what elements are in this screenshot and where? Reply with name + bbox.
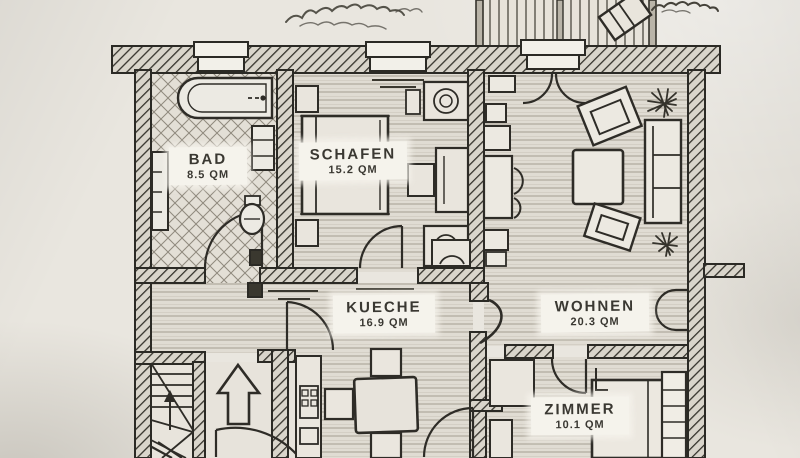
bad-radiator [152,152,168,230]
room-area-kueche: 16.9 QM [339,317,429,331]
wall-hall-2 [260,268,357,283]
door-frame-post [250,250,262,265]
wall-wohnen-zimmer-1 [505,345,553,358]
wall-stub-right [704,264,744,277]
wohnen-desk [484,156,512,218]
wall-wohnen-zimmer-2 [588,345,688,358]
schafen-washbasin [432,240,470,266]
stove [300,386,318,418]
dining-chair-top [371,349,401,376]
wohnen-bench [489,76,515,92]
window-schafen [366,42,430,71]
nightstand-top [296,86,318,112]
wall-left [135,70,151,458]
bad-cabinet [252,126,274,170]
tree-sketch-right [652,2,718,13]
room-name-kueche: KUECHE [339,299,429,317]
room-name-wohnen: WOHNEN [547,297,643,315]
tree-sketch [286,5,422,30]
wohnen-side-table-1 [486,104,506,122]
dresser-stool [406,90,420,114]
room-area-zimmer: 10.1 QM [537,419,623,433]
zimmer-wardrobe [490,420,512,458]
room-area-schafen: 15.2 QM [305,164,401,178]
room-area-wohnen: 20.3 QM [547,316,643,330]
wall-bad-schafen [277,70,293,275]
dining-chair-bottom [371,433,401,458]
label-schafen: SCHAFEN 15.2 QM [299,141,407,180]
label-kueche: KUECHE 16.9 QM [333,294,435,333]
hall-floor [150,283,295,353]
bathtub-drain [260,95,265,100]
room-name-bad: BAD [175,151,241,169]
sofa [645,120,681,223]
label-wohnen: WOHNEN 20.3 QM [541,293,649,332]
wall-right [688,70,705,458]
zimmer-headboard [662,372,686,458]
dining-chair-left [325,389,353,419]
schafen-chair [408,164,434,196]
wall-hall-3 [418,268,484,283]
wohnen-cabinet-2 [486,252,506,266]
dining-table [354,377,418,433]
window-bad [194,42,248,71]
room-name-zimmer: ZIMMER [537,401,623,419]
wall-stair-side [193,362,205,458]
label-bad: BAD 8.5 QM [169,147,247,186]
coffee-table [573,150,623,204]
wall-hall-1 [135,268,205,283]
room-area-bad: 8.5 QM [175,169,241,182]
photo-background: BAD 8.5 QM SCHAFEN 15.2 QM KUECHE 16.9 Q… [0,0,800,458]
room-name-schafen: SCHAFEN [305,145,401,163]
floor-plan-sketch [0,0,800,458]
plant-stand [490,360,534,406]
wall-post [248,283,262,297]
balcony-door [521,40,585,69]
wall-stub-kueche-wohnen [470,283,488,301]
wohnen-cabinet-1 [484,230,508,250]
nightstand-bottom [296,220,318,246]
wohnen-side-table-2 [484,126,510,150]
label-zimmer: ZIMMER 10.1 QM [531,396,629,435]
schafen-desk [436,148,468,212]
schafen-dresser [424,82,468,120]
kitchen-sink [300,428,318,444]
